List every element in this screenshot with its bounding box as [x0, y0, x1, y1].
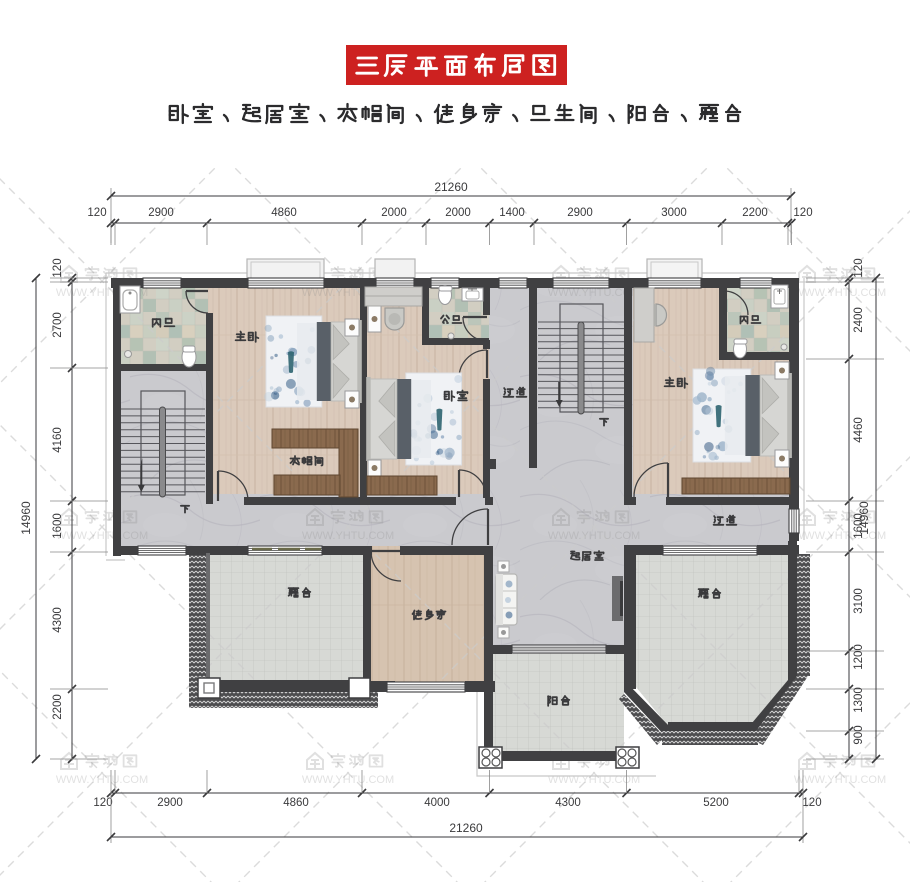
svg-text:4860: 4860 [271, 207, 297, 219]
svg-text:WWW.YHTU.COM: WWW.YHTU.COM [548, 530, 640, 542]
svg-text:120: 120 [93, 797, 112, 809]
svg-text:1300: 1300 [853, 687, 865, 713]
svg-text:4160: 4160 [52, 427, 64, 453]
svg-text:4460: 4460 [853, 417, 865, 443]
svg-text:4000: 4000 [424, 797, 450, 809]
svg-text:2900: 2900 [567, 207, 593, 219]
svg-text:900: 900 [853, 725, 865, 744]
svg-text:1600: 1600 [52, 513, 64, 539]
svg-text:21260: 21260 [434, 180, 468, 194]
svg-text:120: 120 [853, 258, 865, 277]
svg-text:120: 120 [87, 207, 106, 219]
svg-text:14960: 14960 [857, 501, 871, 535]
svg-text:120: 120 [802, 797, 821, 809]
svg-text:WWW.YHTU.COM: WWW.YHTU.COM [794, 774, 886, 786]
svg-text:WWW.YHTU.COM: WWW.YHTU.COM [302, 774, 394, 786]
svg-text:2900: 2900 [148, 207, 174, 219]
svg-text:2200: 2200 [52, 694, 64, 720]
svg-text:120: 120 [52, 258, 64, 277]
svg-text:3100: 3100 [853, 588, 865, 614]
svg-text:2900: 2900 [157, 797, 183, 809]
svg-text:14960: 14960 [19, 501, 33, 535]
svg-text:2700: 2700 [52, 312, 64, 338]
svg-text:5200: 5200 [703, 797, 729, 809]
svg-text:120: 120 [793, 207, 812, 219]
svg-text:1200: 1200 [853, 644, 865, 670]
svg-text:WWW.YHTU.COM: WWW.YHTU.COM [794, 287, 886, 299]
svg-text:2000: 2000 [445, 207, 471, 219]
svg-text:WWW.YHTU.COM: WWW.YHTU.COM [56, 530, 148, 542]
svg-text:WWW.YHTU.COM: WWW.YHTU.COM [302, 530, 394, 542]
svg-text:21260: 21260 [449, 821, 483, 835]
svg-text:4860: 4860 [283, 797, 309, 809]
svg-text:1400: 1400 [499, 207, 525, 219]
svg-text:3000: 3000 [661, 207, 687, 219]
svg-text:2400: 2400 [853, 307, 865, 333]
svg-text:2000: 2000 [381, 207, 407, 219]
svg-text:2200: 2200 [742, 207, 768, 219]
svg-text:WWW.YHTU.COM: WWW.YHTU.COM [56, 774, 148, 786]
svg-text:4300: 4300 [52, 607, 64, 633]
svg-text:4300: 4300 [555, 797, 581, 809]
svg-text:WWW.YHTU.COM: WWW.YHTU.COM [794, 530, 886, 542]
